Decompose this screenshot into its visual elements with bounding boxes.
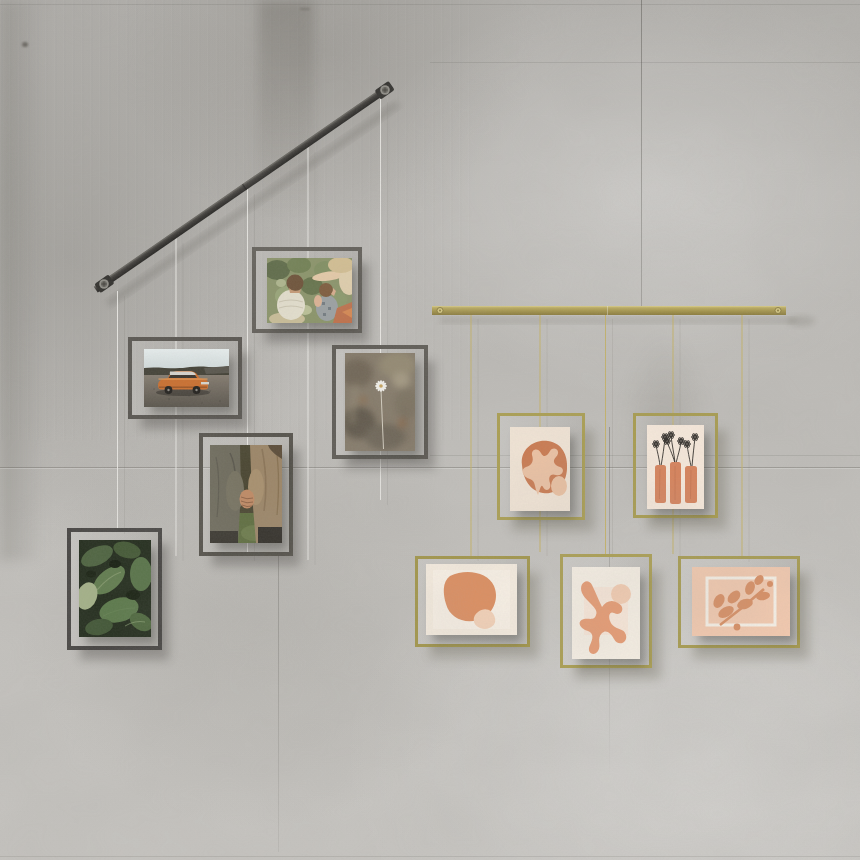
art-print-flower-vases	[647, 425, 704, 509]
brass-rail-shadow-end	[787, 316, 815, 326]
art-frame-flower-vases	[633, 413, 718, 518]
art-print-abstract-stones	[426, 564, 517, 635]
photo-frame-vintage-car	[128, 337, 242, 419]
photo-white-daisy	[345, 353, 415, 451]
photo-frame-holding-hands	[199, 433, 293, 556]
art-frame-abstract-stones	[415, 556, 530, 647]
photo-kids-garden	[267, 258, 352, 323]
photo-vintage-car	[144, 349, 229, 407]
photo-green-leaves	[79, 540, 151, 637]
photo-holding-hands	[210, 445, 282, 543]
art-print-coral-branch	[572, 567, 640, 659]
brass-rail-shadow	[440, 318, 796, 323]
art-frame-leaf-sprig	[678, 556, 800, 648]
art-print-coral-over-blob	[510, 427, 570, 511]
hanging-rig	[0, 0, 860, 860]
concrete-wall-scene	[0, 0, 860, 860]
photo-frame-green-leaves	[67, 528, 162, 650]
brass-rail	[432, 306, 786, 315]
photo-frame-white-daisy	[332, 345, 428, 459]
rail-joint	[607, 306, 608, 315]
art-frame-coral-branch	[560, 554, 652, 668]
art-frame-coral-over-blob	[497, 413, 585, 520]
photo-frame-kids-garden	[252, 247, 362, 333]
clasped-hands	[240, 490, 255, 509]
art-print-leaf-sprig	[692, 567, 790, 636]
